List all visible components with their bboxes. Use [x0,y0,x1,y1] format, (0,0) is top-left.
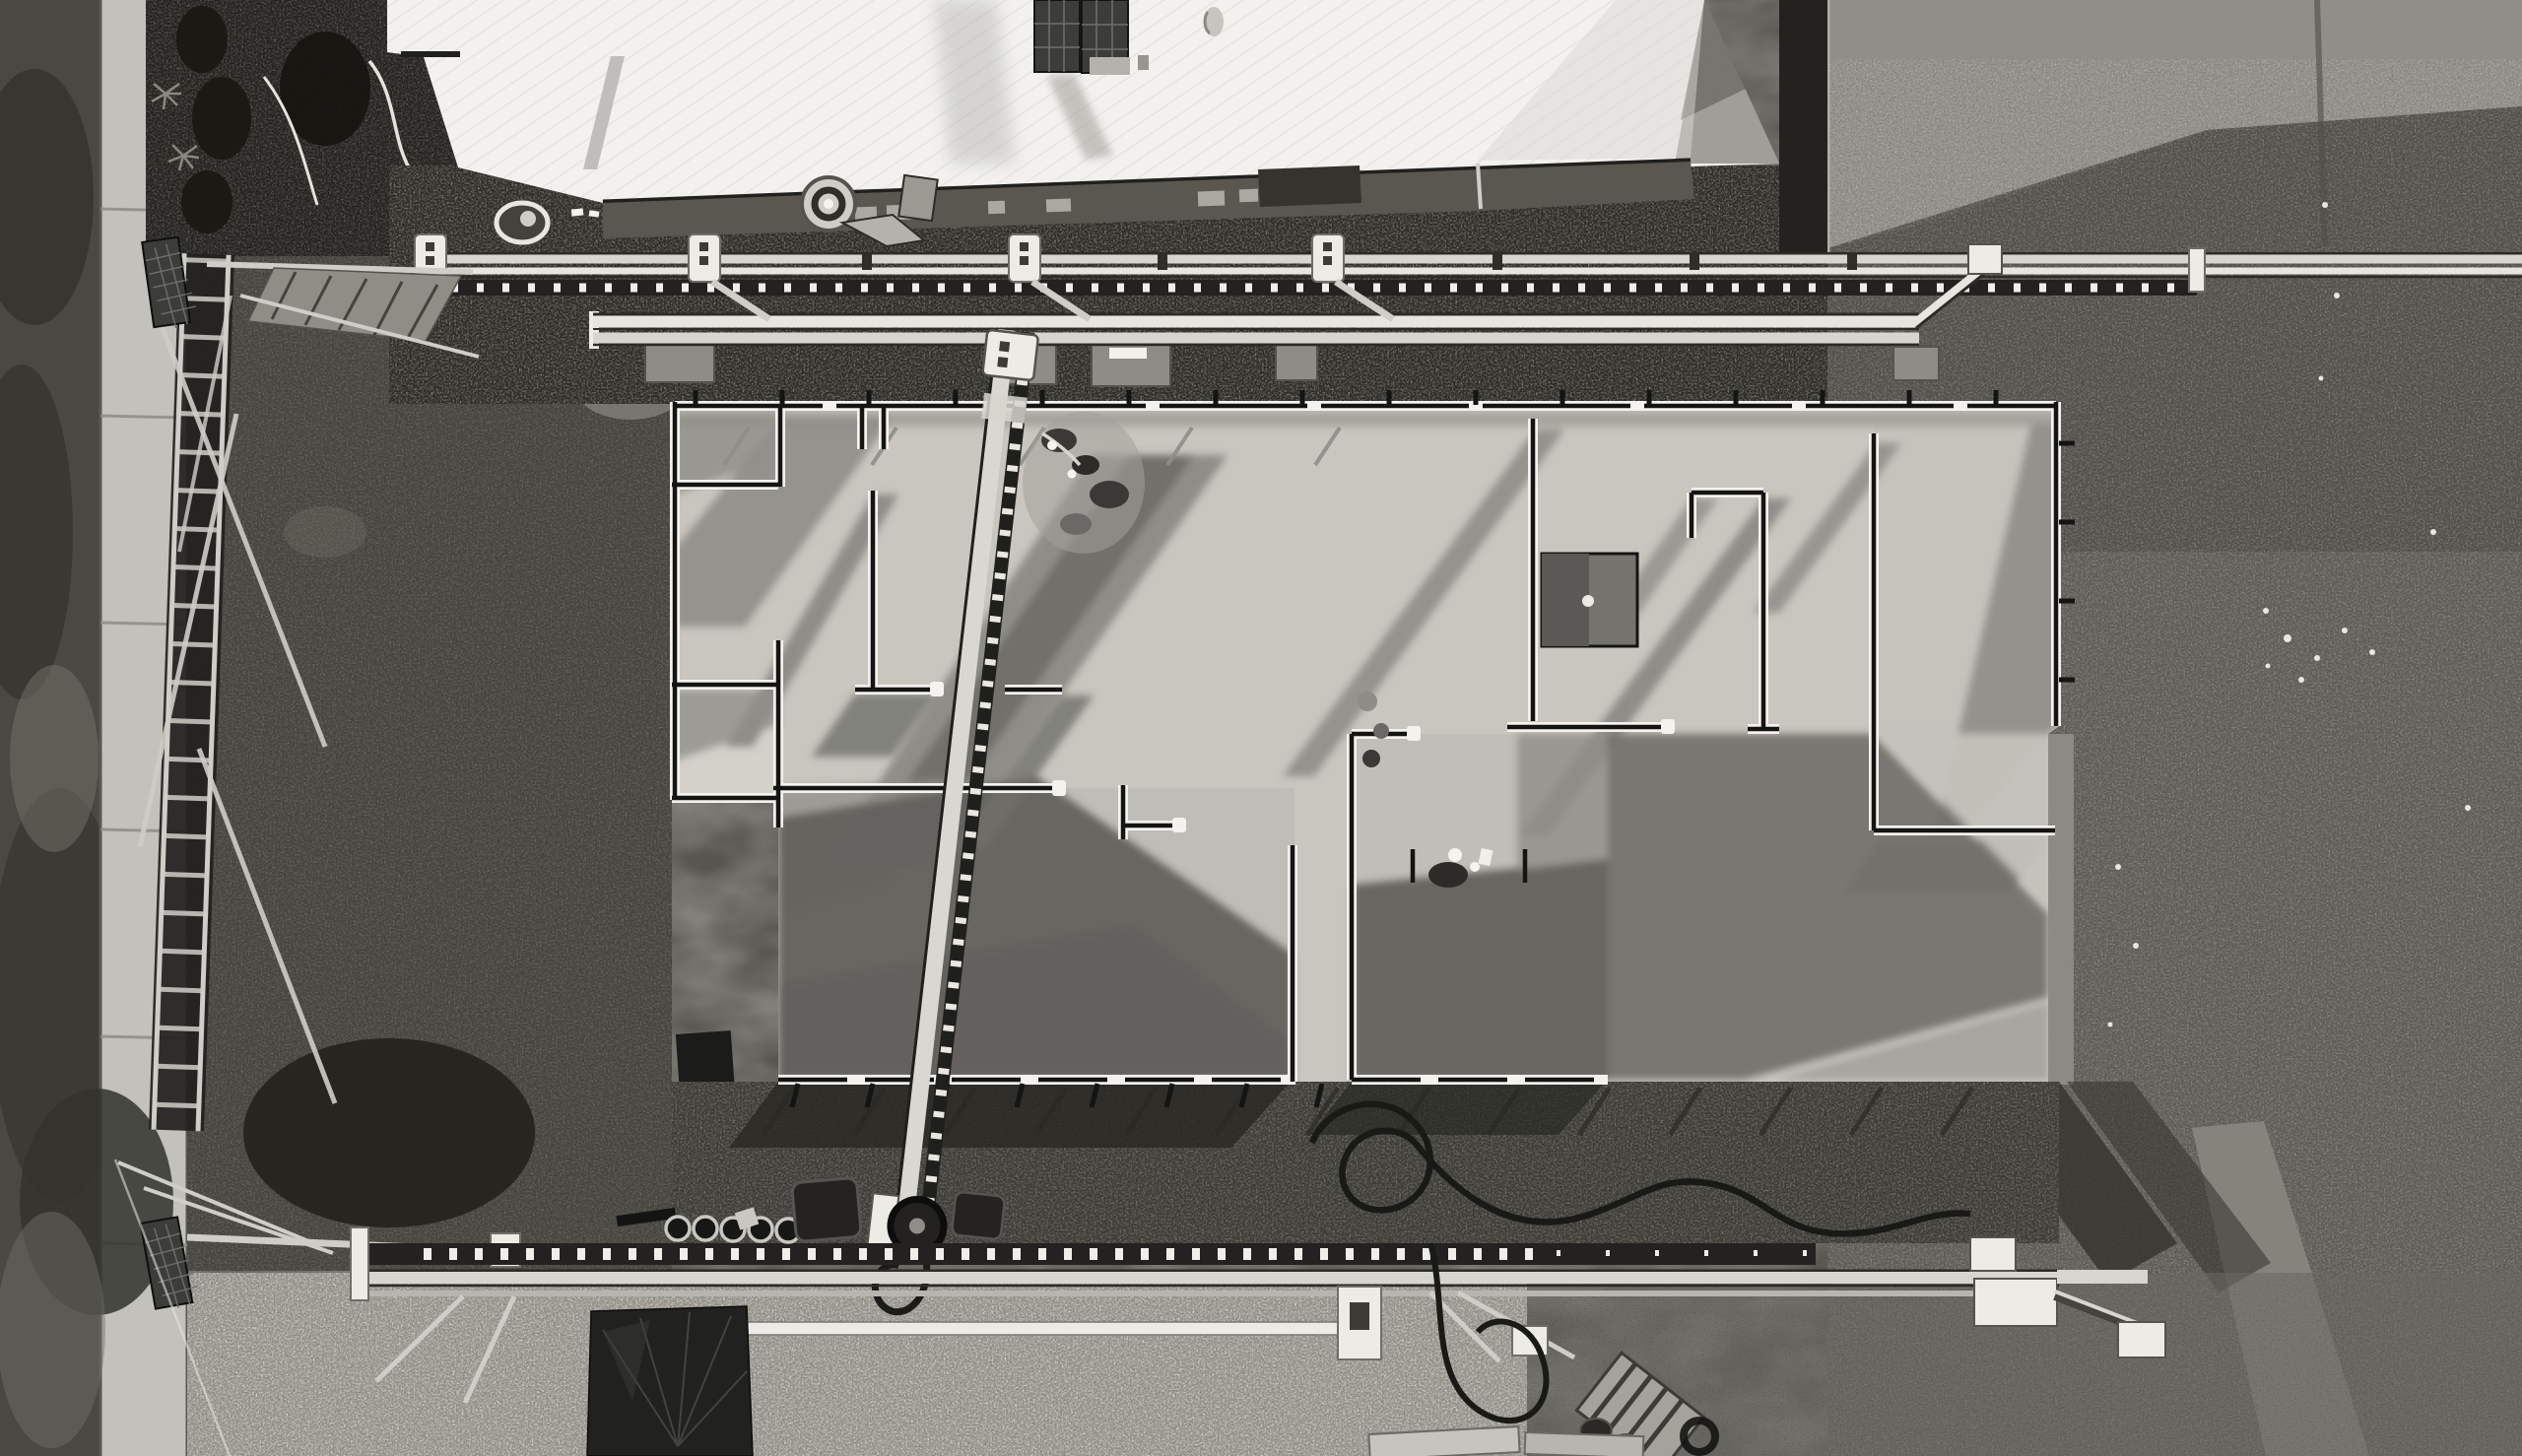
hard-hat [1068,470,1077,479]
worker-hard-hat [1448,848,1462,862]
blower-hub [824,199,833,209]
pipe-end [666,1217,690,1240]
tub [952,1192,1005,1240]
recess-dark-half [1542,554,1589,646]
black-tarp: Black tarp [587,1306,753,1456]
slab-edge-shadow [729,1082,1291,1148]
bucket [1373,723,1389,739]
debris [1072,455,1099,475]
support-pad [645,343,714,382]
ramp-foot [2118,1322,2165,1357]
mulch-pile: Dark mulch pile [243,1038,535,1227]
grass-blotch-light [10,665,99,852]
hedge-blob [181,170,232,233]
mast-trolley [982,330,1038,381]
blower-box [898,175,938,221]
beam [645,1322,1364,1335]
rail-end-cap [2189,248,2205,292]
debris [1041,429,1077,452]
bucket [1362,750,1380,767]
hard-hat [1047,440,1057,450]
roof-small-object [1138,55,1149,70]
post-slot [699,242,708,251]
worn-patch [284,506,366,558]
post-slot [1323,256,1332,265]
tub [792,1177,862,1242]
post-slot [426,242,434,251]
solar-tray [1090,57,1130,75]
pergola-roof [1258,165,1361,207]
hedge-blob [176,6,228,73]
ramp-bracket [1968,244,2002,274]
support-pad [1276,343,1317,380]
post-slot [1020,256,1029,265]
post-slot [1020,242,1029,251]
debris [1060,513,1092,535]
gravel-texture-dark [187,1273,1527,1456]
garden-behind-fence [1779,0,1827,252]
post-slot [699,256,708,265]
debris [1090,481,1129,508]
pad-label [1109,348,1147,359]
light-strip-beside-slab [2047,734,2074,1085]
end-bracket [1970,1237,2016,1271]
trolley-slot [999,341,1010,352]
rail-end-post [351,1227,368,1300]
room-shadow-mass [1352,859,1608,1080]
bracket-slot [1350,1302,1369,1330]
grass-blotch-light [0,1212,105,1448]
small-white-object [571,208,584,216]
pipe-end [694,1217,717,1240]
photo-canvas: Concrete sidewalk Dark mulch pile [0,0,2522,1456]
support-pad [1893,347,1939,380]
hedge-blob [192,77,251,160]
bucket [1358,692,1377,711]
mast-bracket [981,393,1028,424]
shower-recess: Shower recess set-down [1542,554,1637,646]
trolley-slot [997,357,1008,367]
post-slot [1323,242,1332,251]
post-slot [426,256,434,265]
aerial-photo-construction-site: Concrete sidewalk Dark mulch pile [0,0,2522,1456]
mixer-blob [520,211,536,227]
gantry-band-A: Upper gantry rail pair with rack [414,248,2522,296]
end-bracket [1974,1279,2057,1326]
light-boards [1525,1432,1644,1456]
drain [1582,595,1594,607]
solar-panel [1034,0,1080,72]
worker-body [1428,862,1468,888]
shadow [1517,734,1608,871]
debris-cluster: Tools and buckets near mast [1023,412,1145,554]
foundation-slab: House foundation slab with wall formwork [672,390,2075,1107]
